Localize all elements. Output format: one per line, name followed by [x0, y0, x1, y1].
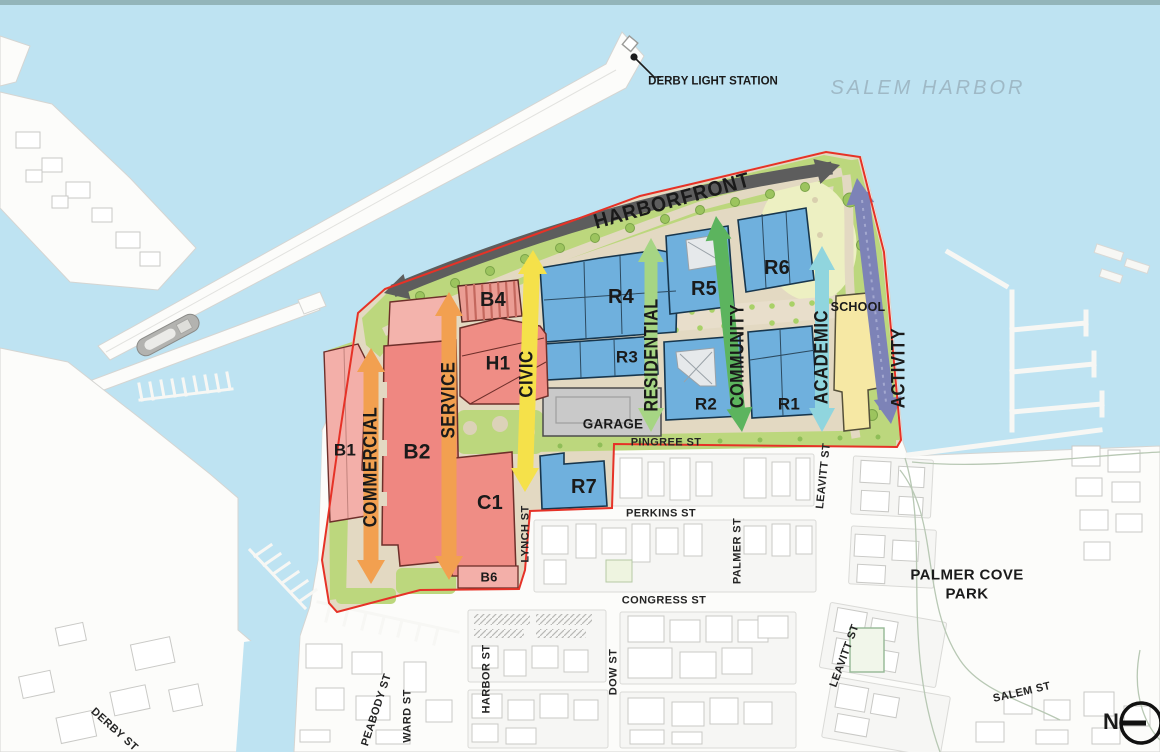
park-label-line1: PALMER COVE: [910, 566, 1023, 585]
building-label-b2: B2: [403, 442, 430, 463]
building-label-garage: GARAGE: [583, 417, 643, 431]
harbor-name-label: SALEM HARBOR: [831, 78, 1026, 98]
harbor-piers: [908, 252, 1102, 455]
street-label-perkins: PERKINS ST: [626, 509, 696, 520]
street-label-ward: WARD ST: [403, 689, 414, 743]
corridor-label-activity: ACTIVITY: [890, 328, 909, 408]
building-label-r5: R5: [691, 279, 717, 299]
light-station-label: DERBY LIGHT STATION: [648, 76, 778, 88]
building-label-r6: R6: [764, 258, 790, 278]
palmer-cove-park-label: PALMER COVE PARK: [910, 566, 1023, 604]
building-label-r7: R7: [571, 477, 597, 497]
building-label-h1: H1: [486, 355, 511, 374]
building-label-r3: R3: [616, 349, 638, 366]
building-label-r2: R2: [695, 396, 717, 413]
corridor-label-academic: ACADEMIC: [813, 310, 832, 404]
building-r6-shape: [738, 208, 814, 292]
street-label-congress: CONGRESS ST: [622, 596, 706, 607]
map-graphics: [0, 0, 1160, 752]
building-label-b1: B1: [334, 442, 356, 459]
building-label-b4: B4: [480, 290, 506, 310]
building-label-r1: R1: [778, 396, 800, 413]
street-label-pingree: PINGREE ST: [631, 438, 702, 449]
building-label-b6: B6: [480, 571, 497, 584]
park-label-line2: PARK: [910, 585, 1023, 604]
small-docks: [1094, 244, 1150, 283]
corridor-label-commercial: COMMERCIAL: [362, 407, 381, 527]
street-label-harbor: HARBOR ST: [482, 645, 493, 714]
street-label-palmer: PALMER ST: [733, 518, 744, 584]
north-label: N: [1103, 711, 1119, 733]
building-label-school: SCHOOL: [831, 301, 886, 314]
corridor-label-residential: RESIDENTIAL: [643, 298, 662, 411]
site-plan-map: SALEM HARBOR DERBY LIGHT STATION HARBORF…: [0, 0, 1160, 752]
corridor-label-community: COMMUNITY: [729, 304, 748, 408]
corridor-label-civic: CIVIC: [518, 350, 537, 397]
building-label-c1: C1: [477, 493, 503, 513]
building-label-r4: R4: [608, 287, 634, 307]
corridor-label-service: SERVICE: [440, 362, 459, 439]
top-border: [0, 0, 1160, 5]
street-label-dow: DOW ST: [609, 649, 620, 695]
street-label-lynch: LYNCH ST: [521, 505, 532, 562]
